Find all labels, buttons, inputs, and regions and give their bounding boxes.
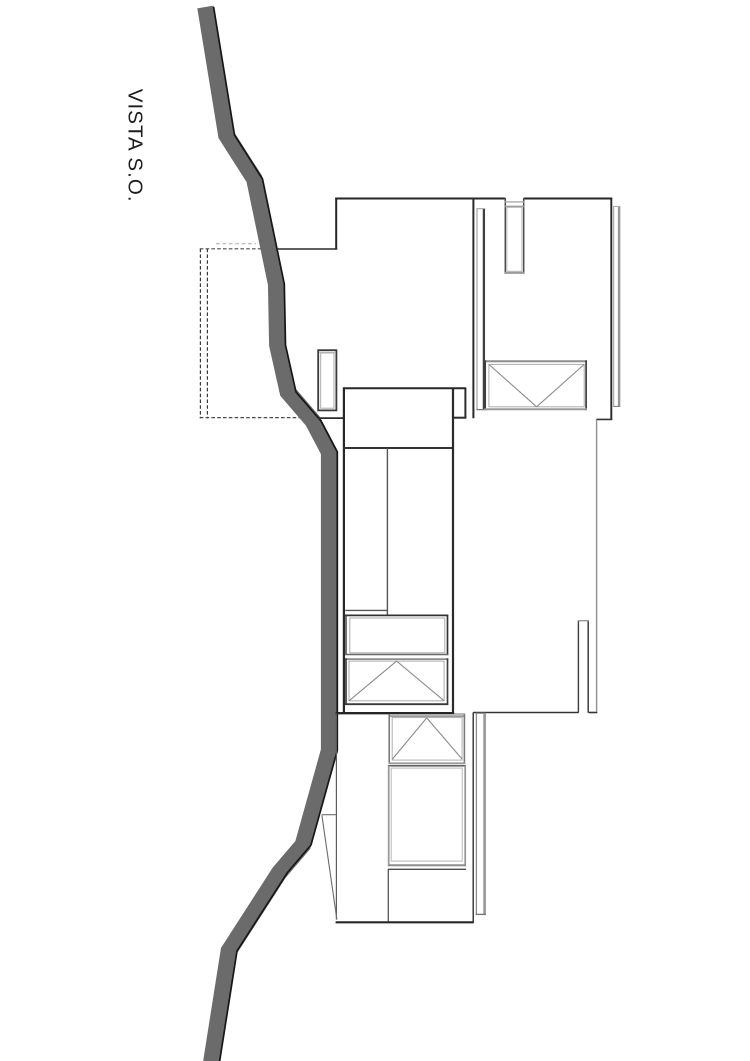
svg-text:VISTA S.O.: VISTA S.O.: [124, 89, 147, 203]
